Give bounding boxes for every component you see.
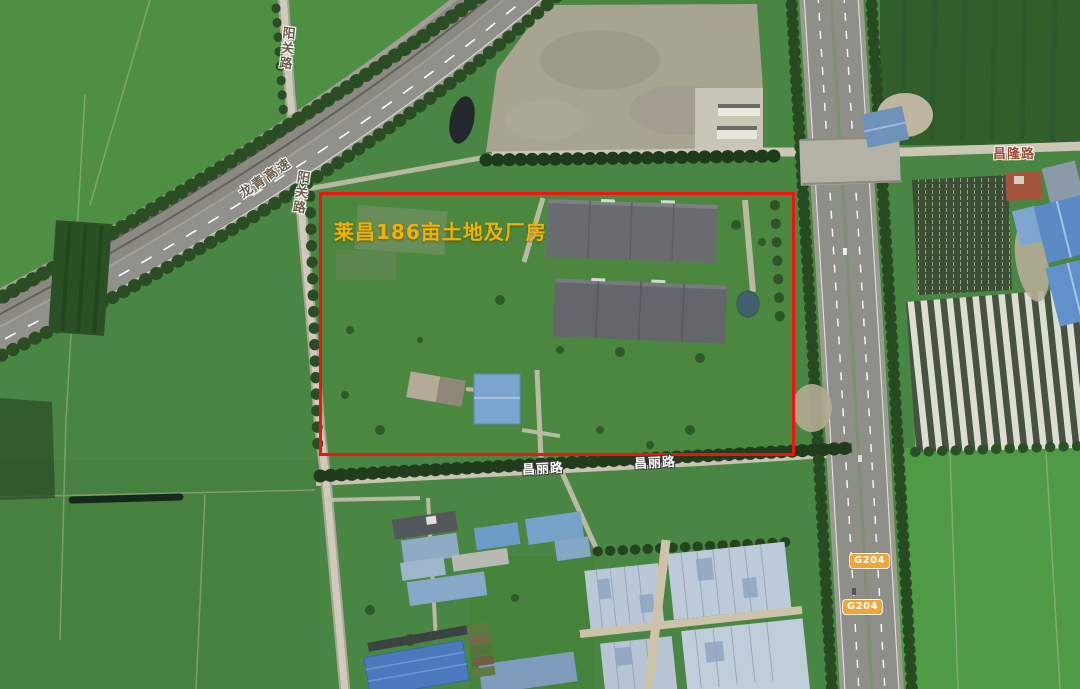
highway-shield-g204-south: G204 (842, 599, 883, 615)
property-boundary-rectangle (319, 192, 795, 456)
satellite-map[interactable]: 莱昌186亩土地及厂房 阳关路 阳关路 龙青高速 昌隆路 昌丽路 昌丽路 G20… (0, 0, 1080, 689)
highway-shield-g204-north: G204 (849, 553, 890, 569)
